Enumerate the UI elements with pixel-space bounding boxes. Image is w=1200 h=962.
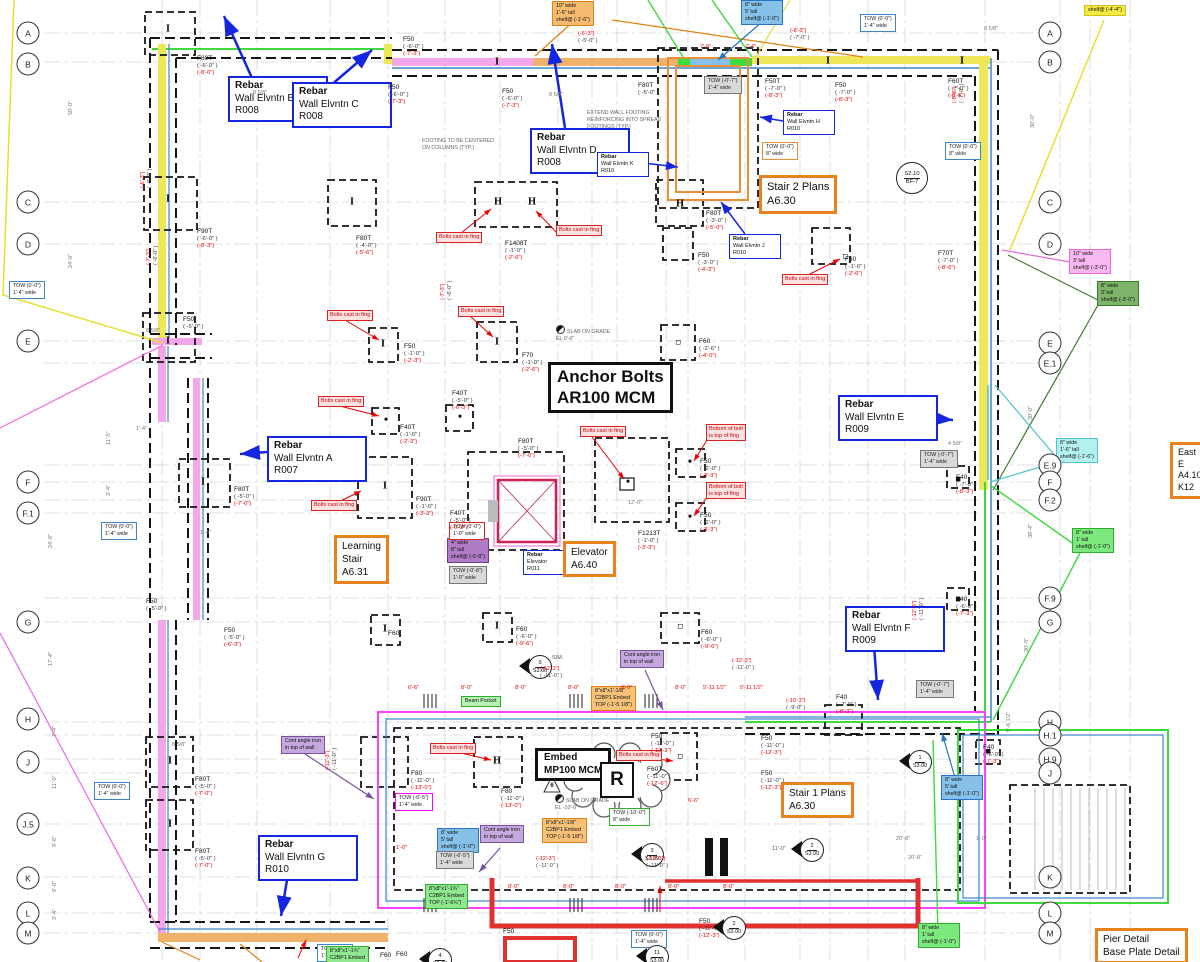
red-dimension-text: 6'-6" [688,798,699,804]
bolts-cast-tag: Bolts cast in ftng [436,232,482,243]
red-dimension-text: 8'-0" [675,685,686,691]
grid-bubble-left-D: D [17,233,40,256]
footing-label: F60 [396,951,407,959]
top-of-wall-note: TOW (-0'-7")1'-4" wide [704,76,742,94]
dimension-text: 7'-4" [52,726,58,737]
dimension-text: 1'-0" [976,836,987,842]
dimension-text: 39'-4" [1028,524,1034,538]
footing-label: F50( -2'-0" )(-3'-3") [700,458,721,480]
red-dimension-text: 8'-0" [668,884,679,890]
dimension-text: 8 5/8" [253,90,267,96]
grid-bubble-left-F.1: F.1 [17,502,40,525]
footing-label: F80T( -5'-0" )(-7'-0") [195,776,216,798]
dimension-text: 24'-8" [48,534,54,548]
angle-iron-note: Cont angle ironin top of wall [480,825,524,843]
footing-label: F80T( -5'-0" )(-7'-0") [234,486,255,508]
grid-bubble-left-J.5: J.5 [17,813,40,836]
top-of-wall-note: TOW (-0'-8")1'-0" wide [449,566,487,584]
footing-label: F50 [503,928,514,936]
footing-label: F90T( -6'-0" )(-8'-3") [197,228,218,250]
column-symbol: I [495,339,499,348]
top-of-wall-note: TOW (0'-0")8" wide [945,142,981,160]
bolts-cast-tag: Bolts cast in ftng [311,500,357,511]
column-symbol: H [494,199,503,208]
column-symbol: I [495,623,499,632]
dimension-text: 1'-4" [200,530,211,536]
column-symbol: I [381,341,385,350]
elevation-pair-text: (-12'-3")( -11'-0" ) [536,856,558,869]
top-of-wall-note: TOW (-6'-5")1'-4" wide [436,851,474,869]
red-dimension-text: 8'-0" [723,884,734,890]
grid-bubble-right-F.2: F.2 [1039,489,1062,512]
dimension-text: 1'-4" [136,426,147,432]
column-symbol: 6 [550,783,553,789]
red-dimension-text: 8'-0" [615,884,626,890]
footing-label: F80T( -5'-0" ) [638,82,659,97]
footing-label: F80T( -6'-0" )(-8'-0") [197,55,218,77]
shelf-note: 4" wide8" tallshelf@ (-0'-8") [447,538,489,563]
rebar-callout: RebarWall Elvntn AR007 [267,436,367,482]
grid-bubble-left-M: M [17,922,40,945]
column-symbol: I [166,338,170,347]
footing-label: F50( -5'-0" )(-6'-3") [224,627,245,649]
embed-plate-note: 8"x8"x1'-1¾"C2BP1 EmbedTOP (-1'-6¾") [326,946,369,962]
footing-label: F40T( -5'-0" )(-6'-3") [452,390,473,412]
column-symbol: I [350,199,354,208]
red-dimension-text: 8'-0" [508,884,519,890]
embed-plate-note: 8"x8"x1'-1/8"C2BP1 EmbedTOP (-1'-5 1/8") [542,818,587,843]
rebar-callout: RebarWall Elvntn HR010 [783,110,835,135]
grid-bubble-right-H.1: H.1 [1039,724,1062,747]
red-dimension-text: 8'-0" [515,685,526,691]
shelf-note: 8" wide5' tallshelf@ (-1'-0") [941,775,983,800]
footing-label: F80T( -5'-0" )(-7'-0") [195,848,216,870]
red-dimension-text: 5'-11 1/2" [703,685,726,691]
shelf-note: 10" wide3' tallshelf@ (-3'-0") [1069,249,1111,274]
sheet-reference-callout: Stair 1 PlansA6.30 [781,782,854,818]
column-symbol: H [493,758,502,767]
slab-elevation-icon [555,794,564,803]
dimension-text: 6'-0" [52,881,58,892]
foundation-plan-sheet: RebarWall Elvntn BR008RebarWall Elvntn C… [0,0,1200,962]
footing-label: F50( -5'-0" ) [146,598,167,613]
footing-label: F50T( -7'-0" )(-8'-3") [765,78,786,100]
footing-label: F40T( -5'-0" )(-6'-3") [450,510,471,532]
rebar-callout: RebarWall Elvntn JR010 [729,234,781,259]
footing-label: F60T( -11'-0" )(-12'-6") [647,766,670,788]
column-symbol: I [201,479,205,488]
footing-label: F50( -6'-0" )(-7'-3") [403,36,424,58]
elevation-pair-text: (-7'-3")( -6'-0" ) [146,245,159,265]
column-symbol: I [166,26,170,35]
shelf-note: 10" wide1'-6" tallshelf@ (-1'-6") [552,1,594,26]
elevation-pair-text: (-12'-3")( -11'-0" ) [646,856,668,869]
rebar-callout: RebarWall Elvntn FR009 [845,606,945,652]
slab-elevation-icon [556,325,565,334]
grid-bubble-left-J: J [17,751,40,774]
bolts-cast-tag: Bolts cast in ftng [556,225,602,236]
grid-bubble-right-E.1: E.1 [1039,352,1062,375]
red-dimension-text: 6'-6" [408,685,419,691]
column-symbol: H [528,199,537,208]
shelf-note: 8" wide5' tallshelf@ (-1'-0") [741,0,783,25]
footing-label: F50( -6'-0" )(-7'-3") [502,88,523,110]
plan-note: SLAB ON GRADEEL -10'-0" [555,794,609,812]
footing-label: F70( -1'-0" )(-2'-6") [522,352,543,374]
grid-bubble-right-M: M [1039,922,1062,945]
column-symbol: I [383,626,387,635]
bottom-of-bolt-tag: Bottom of boltis top of ftng [706,424,746,441]
plan-note: SLAB ON GRADEEL 0'-0" [556,325,610,343]
column-symbol: I [168,758,172,767]
column-symbol: ▫ [842,253,848,262]
footing-label: F80( -11'-0" )(-13'-0") [501,788,524,810]
bottom-of-bolt-tag: Bottom of boltis top of ftng [706,482,746,499]
beam-pocket-note: Beam Pocket [461,696,501,707]
grid-bubble-right-C: C [1039,191,1062,214]
sheet-reference-callout: East EA4.10K12 [1170,442,1200,499]
sheet-reference-callout: ElevatorA6.40 [563,541,616,577]
shelf-note: 8" wide5' tallshelf@ (-1'-0") [437,828,479,853]
footing-label: F70T( -7'-0" )(-8'-6") [938,250,959,272]
red-dimension-text: 8'-0" [563,884,574,890]
bolts-cast-tag: Bolts cast in ftng [430,743,476,754]
top-of-wall-note: TOW (0'-0")1'-4" wide [94,782,130,800]
column-symbol: I [166,196,170,205]
grid-bubble-left-E: E [17,330,40,353]
dimension-text: 8 5/8" [549,92,563,98]
footing-label: F90T( -1'-0" )(-3'-3") [416,496,437,518]
rebar-callout: RebarWall Elvntn KR010 [597,152,649,177]
dimension-text: 12'-0" [628,500,642,506]
footing-label: F50( -11'-0" )(-12'-3") [651,733,674,755]
elevation-pair-text: (-12'-3")( -11'-0" ) [912,598,925,620]
grid-bubble-left-A: A [17,22,40,45]
bolts-cast-tag: Bolts cast in ftng [458,306,504,317]
dimension-text: 9'-6 1/2" [1006,712,1012,732]
grid-bubble-right-J: J [1039,762,1062,785]
red-dimension-text: 8'-0" [461,685,472,691]
column-symbol: • [457,414,463,423]
column-symbol: I [383,483,387,492]
dimension-text: 8 5/8" [146,328,160,334]
dimension-text: 3'-4" [52,909,58,920]
footing-label: F40( -7'-0" )(-8'-3") [836,694,857,716]
dimension-text: 30'-0" [1030,114,1036,128]
column-symbol: ▫ [677,753,683,762]
footing-label: F50( -1'-0" )(-2'-3") [404,343,425,365]
grid-bubble-left-G: G [17,611,40,634]
red-dimension-text: 8'-0" [621,685,632,691]
column-symbol: • [687,459,693,468]
grid-bubble-left-B: B [17,53,40,76]
column-symbol: • [625,479,631,488]
grid-bubble-left-C: C [17,191,40,214]
shelf-note: 8" wide1'-6" tallshelf@ (-1'-6") [1056,438,1098,463]
sheet-reference-callout: Stair 2 PlansA6.30 [759,175,837,214]
elevation-pair-text: (-7'-3")( -6'-0" ) [440,280,453,300]
dimension-text: 9'-8" [52,836,58,847]
red-dimension-text: 7'-8" [700,44,711,50]
dimension-text: 3'-4" [106,485,112,496]
footing-label: F80T( -5'-0" )(-7'-0") [518,438,539,460]
column-symbol: ▪ [955,596,961,605]
elevation-pair-text: (-8'-3")( -7'-0" ) [790,28,810,41]
rebar-callout: RebarWall Elvntn CR008 [292,82,392,128]
column-symbol: • [687,514,693,523]
grid-bubble-right-B: B [1039,51,1062,74]
plan-note: EXTEND WALL FOOTINGREINFORCING INTO SPRE… [587,110,661,131]
shelf-note: 8" wide1' tallshelf@ (-1'-0") [1072,528,1114,553]
bolts-cast-tag: Bolts cast in ftng [782,274,828,285]
labels-layer: RebarWall Elvntn BR008RebarWall Elvntn C… [0,0,1200,962]
red-dimension-text: 7'-4" [745,44,756,50]
revision-cloud-letter: R [600,762,634,798]
shelf-note: 8" wide3' tallshelf@ (-3'-0") [1097,281,1139,306]
footing-label: F50( -6'-0" )(-7'-3") [388,84,409,106]
footing-label: F80( -11'-0" )(-13'-0") [411,770,434,792]
elevation-pair-text: (-12'-3")( -11'-0" ) [540,666,562,679]
dimension-text: 30'-8" [1024,638,1030,652]
sheet-reference-callout: Pier DetailBase Plate Detail [1095,928,1188,962]
grid-bubble-right-A: A [1039,22,1062,45]
angle-iron-note: Cont angle ironin top of wall [620,650,664,668]
column-symbol: ▪ [985,748,991,757]
detail-reference-bubble: S2.10BF-7 [896,162,928,194]
bolts-cast-tag: Bolts cast in ftng [327,310,373,321]
footing-label: F50( -2'-0" )(-3'-3") [700,512,721,534]
top-of-wall-note: TOW (0'-0")8" wide [762,142,798,160]
sheet-reference-callout: LearningStairA6.31 [334,535,389,584]
footing-label: F80T( -4'-0" )(-5'-6") [356,235,377,257]
shelf-note: 8" wide1' tallshelf@ (-1'-0") [918,923,960,948]
top-of-wall-note: TOW (-0'-7")1'-4" wide [920,450,958,468]
footing-label: F50( -11'-0" )(-12'-3") [761,735,784,757]
column-symbol: ▫ [675,339,681,348]
embed-plate-note: 8"x8"x1'-1¾"C2BP1 EmbedTOP (-1'-6¾") [425,884,468,909]
grid-bubble-right-K: K [1039,866,1062,889]
elevation-pair-text: (-6'-3")( -5'-0" ) [578,31,598,44]
top-of-wall-note: TOW (0'-0")1'-4" wide [101,522,137,540]
footing-label: F1213T( -1'-0" )(-3'-3") [638,530,660,552]
red-dimension-text: 8'-0" [568,685,579,691]
top-of-wall-note: TOW (0'-0")1'-4" wide [9,281,45,299]
dimension-text: 8 5/8" [172,742,186,748]
grid-bubble-left-H: H [17,708,40,731]
column-symbol: H [676,201,685,210]
dimension-text: 8 5/8" [984,26,998,32]
dimension-text: 11'-0" [52,775,58,789]
footing-label: F60( -6'-0" )(-9'-6") [701,629,722,651]
dimension-text: 50'-0" [68,101,74,115]
bolts-cast-tag: Bolts cast in ftng [580,426,626,437]
footing-label: F60( -6'-0" )(-9'-6") [516,626,537,648]
top-of-wall-note: TOW (0'-0")1'-4" wide [860,14,896,32]
column-symbol: I [826,58,830,67]
footing-label: F50( -3'-0" )(-4'-3") [698,252,719,274]
footing-label: F50( -5'-0" ) [183,316,204,331]
shelf-note: shelf@ (-4'-4") [1084,5,1126,16]
column-symbol: I [495,59,499,68]
elevation-pair-text: (-8'-6")( -7'-0" ) [952,83,965,103]
dimension-text: 30'-0" [1028,406,1034,420]
footing-label: F60 [380,952,391,960]
top-of-wall-note: TOW (-0'-7")1'-4" wide [916,680,954,698]
footing-label: F1408T( -1'-0" )(-2'-6") [505,240,527,262]
rebar-callout: RebarWall Elvntn ER009 [838,395,938,441]
column-symbol: ▪ [955,476,961,485]
primary-callout: Anchor BoltsAR100 MCM [548,362,673,413]
dimension-text: 17'-4" [48,652,54,666]
red-dimension-text: 5'-11 1/2" [740,685,763,691]
dimension-text: 20'-8" [896,836,910,842]
top-of-wall-note: TOW (-6'-5")1'-4" wide [395,793,433,811]
top-of-wall-note: TOW (-10'-0")8" wide [609,808,650,826]
column-symbol: • [383,417,389,426]
dimension-text: 11'-5" [106,431,112,445]
grid-bubble-left-K: K [17,867,40,890]
angle-iron-note: Cont angle ironin top of wall [281,736,325,754]
dimension-text: 4 5/8" [948,441,962,447]
elevation-pair-text: (-12'-3")( -11'-0" ) [732,658,754,671]
footing-label: F40T( -1'-0" )(-2'-3") [400,424,421,446]
column-symbol: I [168,821,172,830]
elevation-pair-text: (-6'-3")( -5'-0" ) [140,168,153,188]
grid-bubble-right-D: D [1039,233,1062,256]
column-symbol: ▫ [677,623,683,632]
grid-bubble-left-F: F [17,471,40,494]
footing-label: F80T( -3'-0" )(-5'-0") [706,210,727,232]
dimension-text: 24'-8" [68,254,74,268]
footing-label: F60 [388,630,399,638]
footing-label: F50( -7'-0" )(-8'-3") [835,82,856,104]
footing-label: F60( -2'-6" )(-4'-0") [699,338,720,360]
footing-label: F50( -11'-0" )(-12'-3") [761,770,784,792]
column-symbol: I [960,58,964,67]
dimension-text: 20'-8" [908,855,922,861]
plan-note: FOOTING TO BE CENTEREDON COLUMNS (TYP.) [422,138,494,152]
bolts-cast-tag: Bolts cast in ftng [318,396,364,407]
rebar-callout: RebarWall Elvntn GR010 [258,835,358,881]
footing-label: F60( -1'-0" )(-2'-6") [845,256,866,278]
grid-bubble-right-G: G [1039,611,1062,634]
elevation-pair-text: (-12'-3")( -11'-0" ) [325,748,338,770]
red-dimension-text: 1'-0" [396,845,407,851]
elevation-pair-text: (-10'-3")( -9'-0" ) [786,698,806,711]
grid-bubble-right-F.9: F.9 [1039,587,1062,610]
